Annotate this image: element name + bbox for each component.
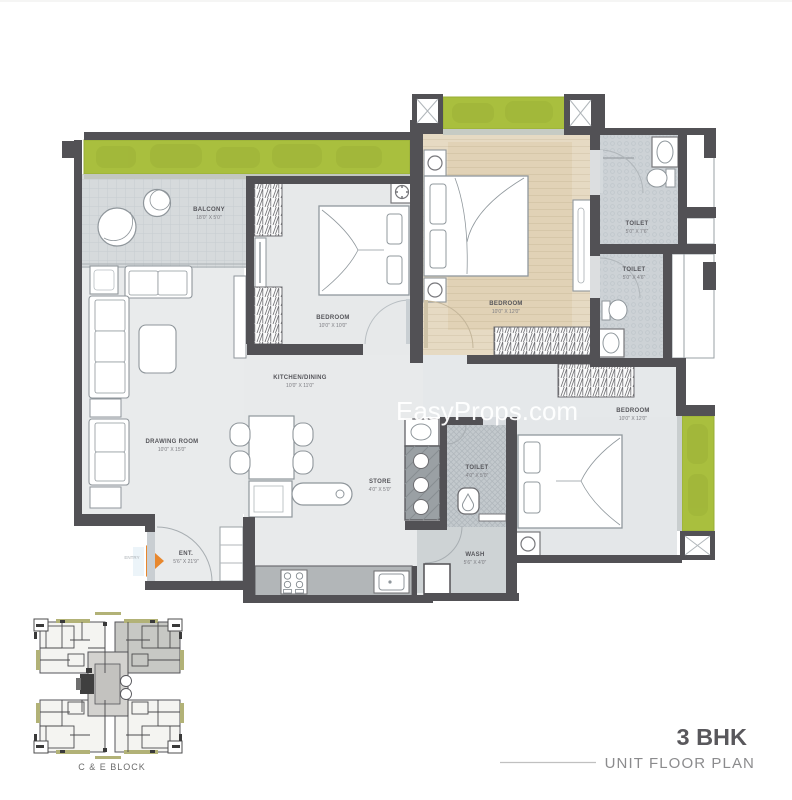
svg-text:5'6" X 21'9": 5'6" X 21'9" — [173, 559, 199, 565]
svg-text:5'0" X 4'6": 5'0" X 4'6" — [623, 275, 646, 281]
svg-text:TOILET: TOILET — [465, 465, 488, 471]
svg-text:10'0" X 15'0": 10'0" X 15'0" — [158, 447, 186, 453]
svg-text:KITCHEN/DINING: KITCHEN/DINING — [273, 375, 327, 381]
svg-text:10'0" X 11'0": 10'0" X 11'0" — [286, 383, 314, 389]
svg-text:TOILET: TOILET — [625, 221, 648, 227]
svg-text:BALCONY: BALCONY — [193, 207, 225, 213]
svg-text:5'6" X 4'0": 5'6" X 4'0" — [464, 560, 487, 566]
svg-text:4'0" X 5'0": 4'0" X 5'0" — [466, 473, 489, 479]
svg-text:ENT.: ENT. — [179, 551, 193, 557]
svg-text:3 BHK: 3 BHK — [676, 724, 747, 750]
svg-text:C & E BLOCK: C & E BLOCK — [78, 762, 146, 772]
svg-text:10'0" X 12'0": 10'0" X 12'0" — [492, 309, 520, 315]
svg-text:5'0" X 7'6": 5'0" X 7'6" — [626, 229, 649, 235]
svg-text:DRAWING ROOM: DRAWING ROOM — [146, 439, 199, 445]
svg-text:4'0" X 5'0": 4'0" X 5'0" — [369, 487, 392, 493]
svg-text:UNIT FLOOR PLAN: UNIT FLOOR PLAN — [605, 755, 755, 772]
svg-text:18'0" X 5'0": 18'0" X 5'0" — [196, 215, 222, 221]
svg-text:TOILET: TOILET — [622, 267, 645, 273]
svg-text:STORE: STORE — [369, 479, 391, 485]
svg-text:EasyProps.com: EasyProps.com — [396, 396, 578, 426]
svg-text:WASH: WASH — [465, 552, 484, 558]
svg-text:10'0" X 10'0": 10'0" X 10'0" — [319, 323, 347, 329]
svg-text:ENTRY: ENTRY — [124, 555, 139, 560]
svg-text:BEDROOM: BEDROOM — [616, 408, 649, 414]
svg-text:10'0" X 12'0": 10'0" X 12'0" — [619, 416, 647, 422]
svg-text:BEDROOM: BEDROOM — [316, 315, 349, 321]
svg-text:BEDROOM: BEDROOM — [489, 301, 522, 307]
